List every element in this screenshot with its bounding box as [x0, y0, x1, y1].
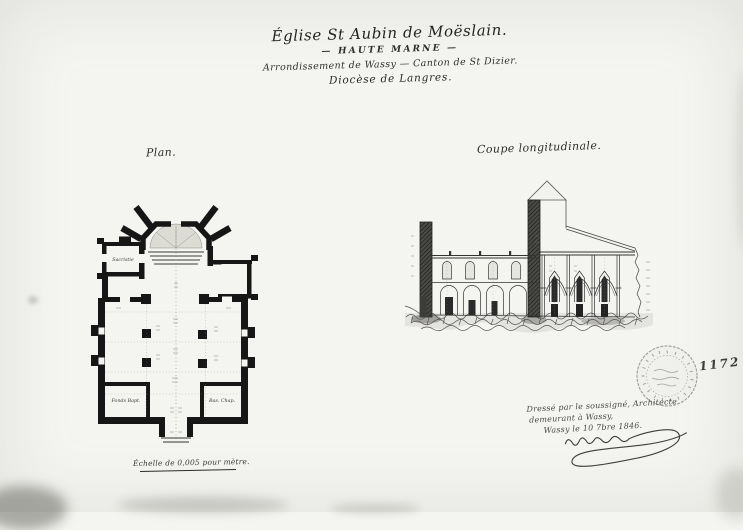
paper-smudge [28, 296, 38, 304]
room-label-chapelle: Bas. Chap. [208, 398, 236, 404]
title-block: Église St Aubin de Moëslain. — HAUTE MAR… [249, 20, 531, 89]
section-label: Coupe longitudinale. [477, 139, 602, 156]
floor-plan-drawing: Sacristie [86, 186, 266, 461]
room-label-sacristie: Sacristie [112, 257, 134, 263]
longitudinal-section-drawing [403, 176, 675, 336]
paper-smudge [330, 503, 420, 514]
room-label-fonts: Fonds Bapt. [110, 398, 140, 404]
paper-smudge [0, 486, 67, 530]
paper-smudge [736, 70, 743, 250]
inventory-number: 1172 [698, 355, 741, 374]
plan-label: Plan. [146, 145, 176, 159]
scale-note: Échelle de 0,005 pour mètre. [133, 457, 250, 468]
signature-flourish [546, 421, 704, 484]
drawing-sheet: Église St Aubin de Moëslain. — HAUTE MAR… [0, 0, 743, 512]
plan-dimension-marks [116, 283, 231, 432]
paper-smudge [716, 468, 743, 520]
paper-smudge [118, 497, 288, 513]
scale-underline [140, 469, 236, 472]
